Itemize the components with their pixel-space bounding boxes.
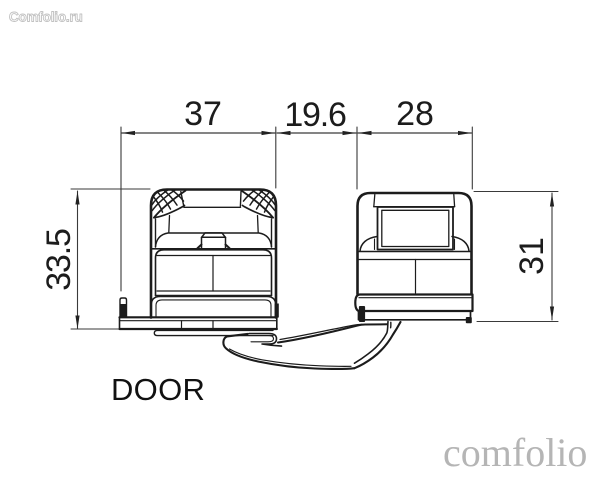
svg-text:28: 28 [396,95,434,133]
svg-text:33.5: 33.5 [40,229,78,291]
svg-text:19.6: 19.6 [284,96,346,134]
svg-text:37: 37 [184,95,222,133]
svg-text:31: 31 [513,237,551,275]
svg-text:DOOR: DOOR [111,372,205,407]
svg-text:comfolio: comfolio [443,430,587,475]
svg-text:Comfolio.ru: Comfolio.ru [9,10,83,25]
